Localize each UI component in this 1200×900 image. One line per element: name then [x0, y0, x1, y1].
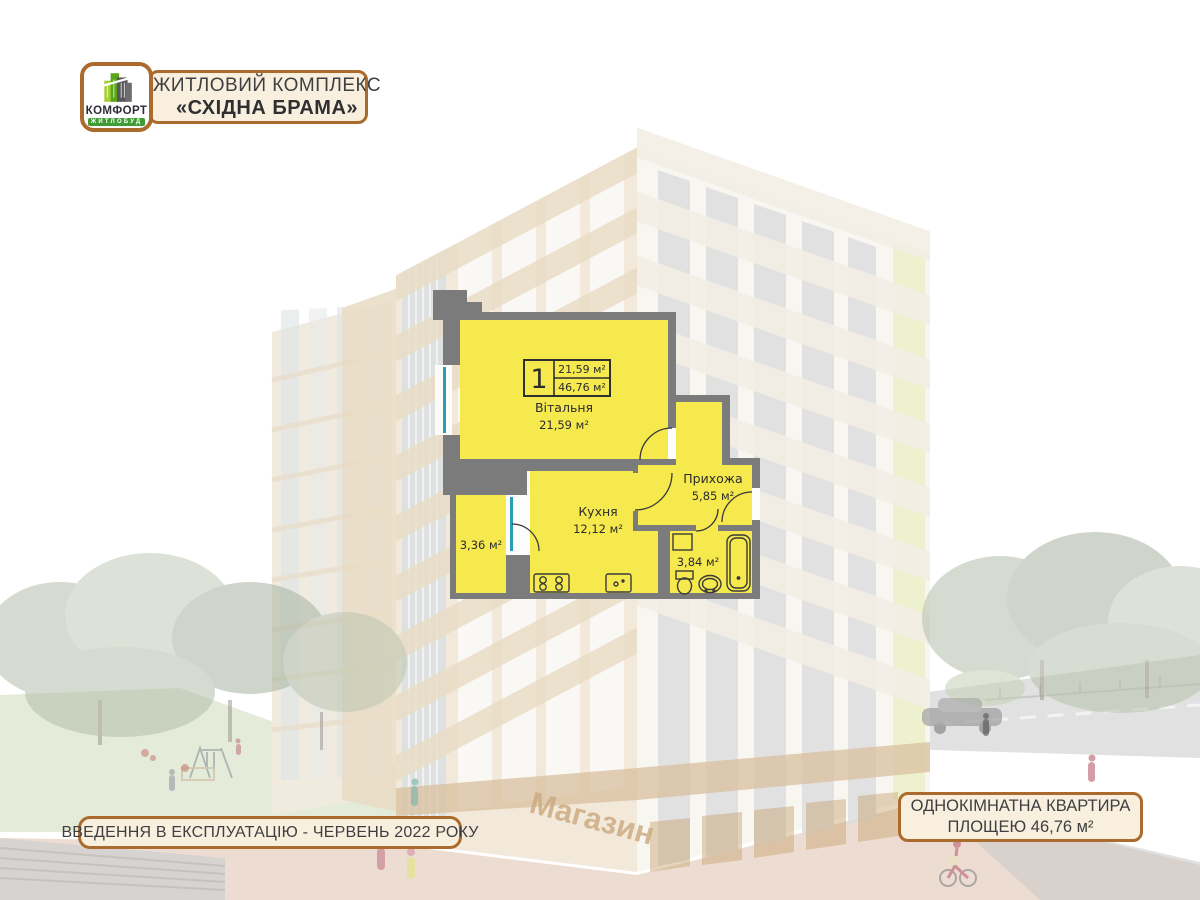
- kitchen-door-opening: [632, 473, 639, 511]
- buildings-icon: [99, 70, 135, 104]
- person: [1088, 755, 1096, 783]
- bathroom-area: 3,84 м²: [677, 555, 720, 569]
- complex-title-line1: ЖИТЛОВИЙ КОМПЛЕКС: [153, 75, 381, 97]
- person: [983, 713, 989, 736]
- living-hall-door-opening: [668, 428, 676, 459]
- entrance-door-opening: [752, 488, 760, 520]
- apartment-type-text: ОДНОКІМНАТНА КВАРТИРА: [911, 796, 1131, 817]
- apartment-floor-plan: 1 21,59 м² 46,76 м² Вітальня 21,59 м² Ку…: [430, 288, 770, 610]
- kitchen-label: Кухня: [578, 504, 617, 519]
- person: [411, 779, 419, 807]
- kitchen-floor-ext: [633, 531, 658, 593]
- logo-sub-text: ЖИТЛОБУД: [88, 118, 146, 126]
- person: [407, 848, 415, 879]
- person: [169, 769, 175, 791]
- hallway-upper-floor: [676, 402, 722, 465]
- hallway-area: 5,85 м²: [692, 489, 735, 503]
- apartment-area-text: ПЛОЩЕЮ 46,76 м²: [948, 817, 1094, 838]
- living-area-value: 21,59 м²: [558, 363, 606, 376]
- logo-brand-text: КОМФОРТ: [86, 105, 148, 117]
- complex-title-box: ЖИТЛОВИЙ КОМПЛЕКС «СХІДНА БРАМА»: [148, 70, 368, 124]
- rooms-count: 1: [530, 364, 547, 395]
- complex-title-line2: «СХІДНА БРАМА»: [176, 97, 358, 120]
- trees-right: [922, 532, 1200, 713]
- total-area-value: 46,76 м²: [558, 381, 606, 394]
- living-room-area: 21,59 м²: [539, 418, 589, 432]
- hallway-label: Прихожа: [683, 471, 742, 486]
- commissioning-date-box: ВВЕДЕННЯ В ЕКСПЛУАТАЦІЮ - ЧЕРВЕНЬ 2022 Р…: [78, 816, 462, 849]
- apartment-summary-box: ОДНОКІМНАТНА КВАРТИРА ПЛОЩЕЮ 46,76 м²: [898, 792, 1143, 842]
- commissioning-date-text: ВВЕДЕННЯ В ЕКСПЛУАТАЦІЮ - ЧЕРВЕНЬ 2022 Р…: [61, 824, 478, 842]
- balcony-area: 3,36 м²: [460, 538, 503, 552]
- living-room-label: Вітальня: [535, 400, 593, 415]
- person: [236, 739, 242, 756]
- developer-logo: КОМФОРТ ЖИТЛОБУД: [80, 62, 153, 132]
- stair-core-column: [342, 288, 398, 812]
- kitchen-area: 12,12 м²: [573, 522, 623, 536]
- plan-info-table: 1 21,59 м² 46,76 м²: [524, 360, 610, 396]
